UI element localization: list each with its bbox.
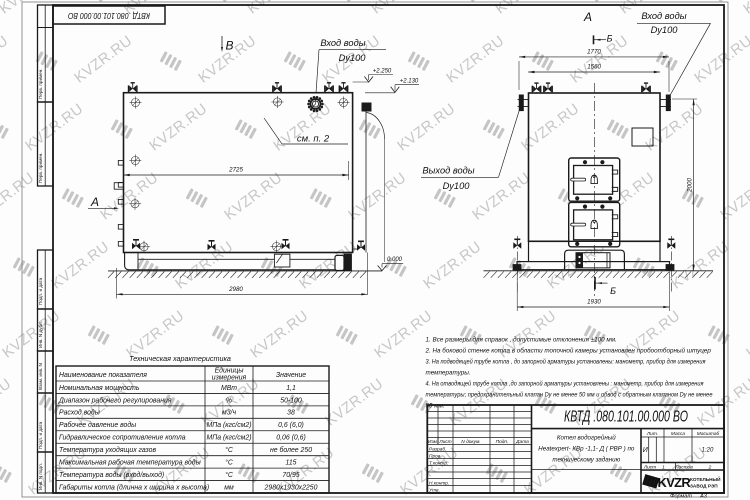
svg-text:KVZR.RU: KVZR.RU [72,33,136,87]
svg-text:температуры.: температуры. [426,370,471,377]
svg-text:50 мм.: 50 мм. [426,403,445,410]
svg-text:Расход воды: Расход воды [59,409,100,417]
svg-text:Dy100: Dy100 [651,25,679,35]
svg-text:А3: А3 [699,494,708,500]
svg-text:KVZR.RU: KVZR.RU [444,33,508,87]
svg-text:Подп. и дата: Подп. и дата [38,421,43,449]
svg-text:N докум.: N докум. [461,439,480,445]
svg-text:KVZR.RU: KVZR.RU [23,101,87,155]
svg-text:4. На отводящей трубе котла ,: 4. На отводящей трубе котла ,до запорной… [426,380,705,388]
svg-text:KVZR.RU: KVZR.RU [744,308,750,362]
svg-text:KVZR.RU: KVZR.RU [741,0,750,18]
svg-text:0,06 (0,6): 0,06 (0,6) [276,435,306,442]
svg-text:измерения: измерения [212,375,247,382]
svg-text:м3/ч: м3/ч [222,410,236,417]
svg-text:Формат: Формат [670,494,692,500]
svg-text:Подп. и дата: Подп. и дата [38,277,43,305]
svg-text:KVZR.RU: KVZR.RU [0,376,14,430]
svg-text:0.000: 0.000 [387,257,403,263]
svg-text:КВТД .080.101.00.000 ВО: КВТД .080.101.00.000 ВО [564,409,688,426]
svg-text:Масса: Масса [671,431,686,437]
svg-text:Перв. примен.: Перв. примен. [38,68,43,99]
svg-text:Выход воды: Выход воды [422,166,474,176]
svg-text:Лист: Лист [643,464,656,470]
svg-text:Вход воды: Вход воды [641,11,686,21]
svg-text:Единицы: Единицы [215,367,244,375]
svg-text:2725: 2725 [228,167,243,174]
svg-text:KVZR.RU: KVZR.RU [395,101,459,155]
svg-text:Dy100: Dy100 [339,53,367,63]
svg-text:температуры; предохранительны: температуры; предохранительный клапан Dу… [426,391,713,399]
svg-text:KVZR.RU: KVZR.RU [49,239,113,293]
svg-text:Лист: Лист [438,439,451,445]
svg-text:Вход воды: Вход воды [320,38,365,48]
svg-text:А: А [90,195,99,209]
svg-text:70/95: 70/95 [282,472,299,479]
svg-text:Габариты котла (длинна х ширин: Габариты котла (длинна х ширина х высота… [59,483,209,491]
svg-text:КОТЕЛЬНЫЙ: КОТЕЛЬНЫЙ [690,475,721,482]
svg-text:°С: °С [225,446,234,454]
svg-text:Температура воды (вход/выход): Температура воды (вход/выход) [59,471,164,479]
svg-text:Н.контр.: Н.контр. [429,481,449,487]
svg-text:KVZR.RU: KVZR.RU [0,308,63,362]
svg-text:не более 250: не более 250 [270,446,312,454]
svg-text:KVZR.RU: KVZR.RU [147,101,211,155]
svg-text:Номинальная мощность: Номинальная мощность [59,385,140,392]
svg-text:KVZR.RU: KVZR.RU [493,0,557,18]
svg-text:Взам. инв. N: Взам. инв. N [38,363,43,390]
svg-text:KVZR: KVZR [658,475,692,490]
svg-text:0,6 (6,0): 0,6 (6,0) [278,422,304,429]
svg-text:1930: 1930 [587,299,601,306]
svg-text:KVZR.RU: KVZR.RU [173,239,237,293]
svg-text:Котел водогрейный: Котел водогрейный [557,435,616,442]
svg-text:KVZR.RU: KVZR.RU [0,33,11,87]
svg-text:Изм: Изм [428,439,438,445]
svg-text:В: В [225,39,233,53]
svg-text:Перв. примен.: Перв. примен. [38,152,43,183]
svg-text:KVZR.RU: KVZR.RU [248,308,312,362]
svg-text:KVZR.RU: KVZR.RU [98,170,162,224]
svg-text:Б: Б [610,286,616,296]
svg-text:1. Все размеры для справок ,: 1. Все размеры для справок , допустимые … [426,336,617,344]
svg-text:2000: 2000 [686,178,693,193]
svg-text:KVZR.RU: KVZR.RU [222,170,286,224]
svg-text:И: И [643,447,649,454]
svg-text:Разраб.: Разраб. [429,447,446,453]
svg-text:+2.130: +2.130 [400,79,419,85]
svg-text:38: 38 [287,410,295,417]
svg-text:KVZR.RU: KVZR.RU [568,33,632,87]
svg-text:Пров.: Пров. [429,454,442,460]
svg-text:Б: Б [607,33,613,43]
svg-text:МПа (кгс/см2): МПа (кгс/см2) [206,435,251,442]
svg-text:техническому заданию: техническому заданию [552,457,620,464]
svg-text:Инв. N подл.: Инв. N подл. [38,463,43,490]
svg-text:50-100: 50-100 [280,397,302,404]
svg-text:Dy100: Dy100 [443,181,471,191]
svg-text:KVZR.RU: KVZR.RU [271,101,335,155]
svg-text:мм: мм [224,484,234,491]
svg-text:Листов: Листов [674,464,693,470]
svg-text:см. п. 2: см. п. 2 [297,134,330,145]
svg-text:Гидравлическое сопротивление к: Гидравлическое сопротивление котла [59,434,186,442]
svg-text:1770: 1770 [587,49,601,56]
svg-text:KVZR.RU: KVZR.RU [346,170,410,224]
svg-text:2980: 2980 [228,286,243,293]
svg-text:Значение: Значение [276,372,306,379]
svg-text:KVZR.RU: KVZR.RU [323,376,387,430]
svg-text:2: 2 [708,464,712,470]
svg-text:Техническая характеристика: Техническая характеристика [129,354,231,363]
svg-text:KVZR.RU: KVZR.RU [0,0,60,18]
svg-text:Heatexpert- КВр -1,1- Д ( РВР: Heatexpert- КВр -1,1- Д ( РВР ) по [538,446,635,453]
svg-text:ЗАВОД РЭП: ЗАВОД РЭП [690,484,718,489]
svg-text:KVZR.RU: KVZR.RU [245,0,309,18]
svg-text:Подп.: Подп. [496,439,509,445]
svg-text:115: 115 [286,460,297,467]
svg-text:Рабочее давление воды: Рабочее давление воды [59,421,136,429]
svg-text:2980х1930х2250: 2980х1930х2250 [264,484,318,491]
svg-text:1,1: 1,1 [286,385,296,392]
svg-text:1:20: 1:20 [702,448,714,454]
svg-text:А: А [583,10,592,24]
svg-text:Т.контр.: Т.контр. [429,461,448,467]
svg-text:KVZR.RU: KVZR.RU [646,445,710,499]
svg-text:1: 1 [662,464,665,470]
svg-text:Утв.: Утв. [429,488,440,494]
svg-text:Инв. N дубл.: Инв. N дубл. [38,321,43,348]
svg-text:Диапазон рабочего регулировани: Диапазон рабочего регулирования [58,396,172,404]
svg-text:KVZR.RU: KVZR.RU [718,170,750,224]
svg-text:Лит.: Лит. [646,431,658,437]
svg-text:1560: 1560 [587,64,601,71]
svg-text:Температура уходящих газов: Температура уходящих газов [59,446,157,454]
svg-text:Наименование показателя: Наименование показателя [59,372,147,379]
svg-text:KVZR.RU: KVZR.RU [421,239,485,293]
svg-text:+2.250: +2.250 [373,69,392,75]
svg-text:KVZR.RU: KVZR.RU [0,170,37,224]
svg-text:Дата: Дата [515,439,529,445]
svg-text:KVZR.RU: KVZR.RU [470,170,534,224]
svg-text:2. На боковой стенке котла в: 2. На боковой стенке котла в области топ… [425,347,712,355]
svg-text:Максимальная рабочая температу: Максимальная рабочая температура воды [59,459,201,467]
svg-text:KVZR.RU: KVZR.RU [669,239,733,293]
svg-text:МВт: МВт [221,385,237,392]
svg-text:КВТД .080.101.00.000 ВО: КВТД .080.101.00.000 ВО [68,11,150,21]
svg-text:Масштаб: Масштаб [697,431,720,437]
svg-text:3. На подводящей трубе котла: 3. На подводящей трубе котла , до запорн… [426,358,707,366]
svg-text:%: % [226,397,232,404]
svg-text:KVZR.RU: KVZR.RU [369,0,433,18]
svg-text:МПа (кгс/см2): МПа (кгс/см2) [206,422,251,429]
svg-text:°С: °С [225,459,234,467]
svg-text:°С: °С [225,471,234,479]
